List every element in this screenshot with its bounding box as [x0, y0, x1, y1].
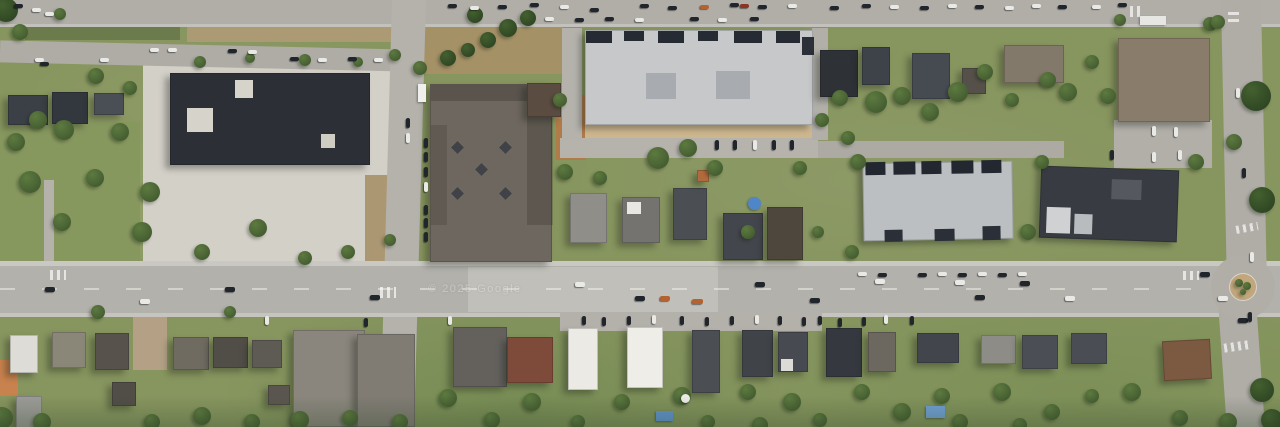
- tree: [1249, 187, 1275, 213]
- tree: [1123, 383, 1141, 401]
- tree: [812, 226, 824, 238]
- car: [424, 205, 428, 215]
- house: [673, 188, 707, 240]
- roof-detail: [499, 187, 512, 200]
- car: [890, 5, 899, 9]
- tree: [707, 160, 723, 176]
- tree: [793, 161, 807, 175]
- garage-brown: [1162, 339, 1212, 381]
- imagery-watermark: © 2025 Google: [428, 283, 522, 295]
- roof-detail: [1111, 179, 1142, 200]
- tree: [593, 171, 607, 185]
- car: [1005, 6, 1014, 10]
- tree: [832, 90, 848, 106]
- tree: [741, 225, 755, 239]
- roof-detail: [187, 108, 213, 132]
- white-dome: [681, 394, 690, 403]
- car: [424, 138, 428, 148]
- tree: [144, 414, 160, 427]
- car: [370, 295, 380, 300]
- car: [730, 316, 734, 325]
- car: [1242, 168, 1246, 178]
- roof-detail: [716, 71, 750, 99]
- tree: [29, 111, 47, 129]
- car: [1118, 3, 1127, 7]
- apartment-complex-south: [357, 334, 415, 427]
- car: [1058, 5, 1067, 9]
- crosswalk: [1228, 8, 1239, 22]
- construction-building: [170, 73, 370, 165]
- house: [868, 332, 896, 372]
- house: [742, 330, 773, 377]
- roof-detail: [781, 359, 793, 371]
- tree: [111, 123, 129, 141]
- tree: [1261, 409, 1280, 427]
- tree: [1250, 378, 1274, 402]
- tree: [53, 213, 71, 231]
- roof-detail: [658, 31, 684, 43]
- tree: [1188, 154, 1204, 170]
- car: [424, 152, 428, 162]
- tree: [461, 43, 475, 57]
- tree: [342, 410, 358, 426]
- car: [818, 316, 822, 325]
- tree: [1235, 279, 1243, 287]
- car: [753, 140, 757, 150]
- tree: [0, 407, 13, 427]
- car: [862, 317, 866, 326]
- tree: [91, 305, 105, 319]
- car: [374, 58, 383, 62]
- car: [424, 167, 428, 177]
- car: [838, 318, 842, 327]
- tree: [140, 182, 160, 202]
- tree: [132, 222, 152, 242]
- tree: [865, 91, 887, 113]
- house: [453, 327, 507, 387]
- car: [730, 3, 739, 7]
- tree: [341, 245, 355, 259]
- tree: [249, 219, 267, 237]
- car: [45, 12, 54, 16]
- tree: [384, 234, 396, 246]
- garage-white: [10, 335, 38, 373]
- roof-detail: [627, 202, 641, 214]
- car: [1238, 318, 1248, 323]
- tree: [1240, 289, 1246, 295]
- tree: [701, 415, 715, 427]
- tree: [299, 54, 311, 66]
- roof-detail: [431, 125, 447, 225]
- crosswalk: [380, 287, 396, 298]
- car: [858, 272, 867, 276]
- car: [718, 18, 727, 22]
- car: [875, 279, 885, 284]
- car: [1152, 152, 1156, 162]
- car: [690, 17, 699, 21]
- house-red-roof: [507, 337, 553, 383]
- car: [32, 8, 41, 12]
- roof-detail: [451, 141, 464, 154]
- car: [635, 296, 645, 301]
- tree: [553, 93, 567, 107]
- tree: [740, 384, 756, 400]
- car: [424, 182, 428, 192]
- roof-detail: [893, 161, 915, 174]
- car: [715, 140, 719, 150]
- center-line: [0, 288, 1280, 290]
- tree: [647, 147, 669, 169]
- tree: [841, 131, 855, 145]
- tree: [480, 32, 496, 48]
- car: [975, 295, 985, 300]
- car: [290, 57, 299, 61]
- tree: [193, 407, 211, 425]
- roof-detail: [451, 187, 464, 200]
- car: [788, 4, 797, 8]
- car: [318, 58, 327, 62]
- car: [424, 218, 428, 228]
- south-parking-lane: [560, 313, 822, 331]
- tree: [934, 388, 950, 404]
- car: [998, 273, 1007, 277]
- car: [1200, 272, 1210, 277]
- tree: [499, 19, 517, 37]
- roof-detail: [865, 162, 885, 175]
- tree: [1044, 404, 1060, 420]
- aerial-map-canvas[interactable]: © 2025 Google: [0, 0, 1280, 427]
- house: [912, 53, 950, 99]
- tree: [1085, 389, 1099, 403]
- tree: [1040, 72, 1056, 88]
- tree: [123, 81, 137, 95]
- roof-detail: [475, 163, 488, 176]
- tree: [19, 171, 41, 193]
- roof-detail: [981, 160, 1001, 173]
- house: [767, 207, 803, 260]
- roof-detail: [321, 134, 335, 148]
- house: [252, 340, 282, 368]
- car: [150, 48, 159, 52]
- roof-detail: [934, 229, 954, 241]
- car: [1065, 296, 1075, 301]
- trampoline: [748, 197, 761, 210]
- car: [448, 316, 452, 325]
- house: [95, 333, 129, 370]
- roof-detail: [646, 73, 676, 99]
- car: [1218, 296, 1228, 301]
- roof-detail: [1046, 207, 1071, 234]
- tree: [1219, 413, 1237, 427]
- car: [918, 273, 927, 277]
- car: [225, 287, 235, 292]
- tree: [484, 412, 500, 427]
- house: [52, 92, 88, 124]
- car: [530, 3, 539, 7]
- car: [265, 316, 269, 325]
- tree: [948, 82, 968, 102]
- tree: [815, 113, 829, 127]
- tree: [845, 245, 859, 259]
- car: [938, 272, 947, 276]
- car: [575, 18, 584, 22]
- car: [1178, 150, 1182, 160]
- tree: [1085, 55, 1099, 69]
- car: [590, 8, 599, 12]
- rv-trailer: [1140, 16, 1166, 25]
- terrace-strip: [585, 125, 815, 138]
- roof-detail: [921, 161, 941, 174]
- roof-detail: [235, 80, 253, 98]
- commercial-hip-building: [1118, 38, 1210, 122]
- tree: [389, 49, 401, 61]
- car: [406, 118, 410, 128]
- tree: [54, 8, 66, 20]
- car: [248, 50, 257, 54]
- tree: [291, 411, 309, 427]
- car: [668, 6, 677, 10]
- car: [545, 17, 554, 21]
- roof-detail: [624, 31, 644, 41]
- tree: [993, 383, 1011, 401]
- car: [790, 140, 794, 150]
- car: [878, 273, 887, 277]
- debris-lot: [133, 316, 167, 370]
- tree: [1172, 410, 1188, 426]
- tree: [1035, 155, 1049, 169]
- tree: [783, 393, 801, 411]
- tree: [224, 306, 236, 318]
- car: [1032, 4, 1041, 8]
- tree: [813, 413, 827, 427]
- car: [1236, 88, 1240, 98]
- car: [100, 58, 109, 62]
- car: [772, 140, 776, 150]
- car: [778, 316, 782, 325]
- car: [755, 282, 765, 287]
- car: [560, 5, 569, 9]
- car: [348, 57, 357, 61]
- tree: [752, 417, 768, 427]
- roof-detail: [734, 31, 762, 43]
- house: [1022, 335, 1058, 369]
- tree: [194, 56, 206, 68]
- block-lane: [562, 28, 582, 140]
- house: [52, 332, 86, 368]
- car: [40, 62, 49, 66]
- car: [1092, 5, 1101, 9]
- pool: [656, 411, 673, 421]
- pool-tarp: [926, 406, 945, 418]
- tree: [54, 120, 74, 140]
- tree: [1013, 418, 1027, 427]
- car: [45, 287, 55, 292]
- car: [1250, 252, 1254, 262]
- roof-detail: [1074, 214, 1093, 235]
- crosswalk: [50, 270, 66, 280]
- car: [14, 4, 23, 8]
- tree: [7, 133, 25, 151]
- tree: [1114, 14, 1126, 26]
- driveway: [44, 180, 54, 272]
- tree: [33, 413, 51, 427]
- house: [1071, 333, 1107, 364]
- car: [830, 6, 839, 10]
- tree: [854, 384, 870, 400]
- tree: [614, 394, 630, 410]
- tree: [557, 164, 573, 180]
- sidewalk: [0, 24, 1280, 27]
- car: [1152, 126, 1156, 136]
- car: [406, 133, 410, 143]
- tree: [245, 53, 255, 63]
- crosswalk: [1183, 271, 1199, 280]
- car: [680, 316, 684, 325]
- house: [826, 328, 862, 377]
- house: [917, 333, 959, 363]
- car: [733, 140, 737, 150]
- roof-detail: [527, 115, 553, 225]
- car: [958, 273, 967, 277]
- moving-truck: [418, 84, 426, 102]
- house: [981, 335, 1016, 364]
- car: [582, 316, 586, 325]
- car: [755, 315, 759, 324]
- car: [758, 5, 767, 9]
- apartment-building-gray: [585, 30, 813, 125]
- tree: [244, 414, 260, 427]
- house: [778, 332, 808, 372]
- roof-detail: [802, 37, 814, 55]
- tree: [1211, 15, 1225, 29]
- tree: [850, 154, 866, 170]
- long-dark-building: [692, 330, 720, 393]
- tree: [679, 139, 697, 157]
- tree: [921, 103, 939, 121]
- car: [660, 296, 670, 301]
- tree: [1226, 134, 1242, 150]
- roof-detail: [499, 141, 512, 154]
- left-cross-street: [0, 40, 412, 71]
- car: [1020, 281, 1030, 286]
- roof-detail: [951, 160, 973, 173]
- apartment-building-1: [862, 161, 1013, 242]
- car: [948, 4, 957, 8]
- roof-detail: [884, 230, 902, 242]
- car: [602, 317, 606, 326]
- apartment-building-2: [1039, 166, 1179, 243]
- white-flat-building: [627, 327, 663, 388]
- car: [862, 4, 871, 8]
- house: [862, 47, 890, 85]
- tree: [194, 244, 210, 260]
- white-flat-building: [568, 328, 598, 390]
- tree: [392, 414, 408, 427]
- tree: [1005, 93, 1019, 107]
- car: [448, 4, 457, 8]
- house: [213, 337, 248, 368]
- roof-detail: [698, 31, 718, 41]
- house: [570, 193, 607, 243]
- car: [978, 272, 987, 276]
- tree: [413, 61, 427, 75]
- car: [605, 17, 614, 21]
- shed: [112, 382, 136, 406]
- house: [622, 197, 660, 243]
- tree: [12, 24, 28, 40]
- car: [975, 5, 984, 9]
- tree: [86, 169, 104, 187]
- car: [635, 18, 644, 22]
- car: [1018, 272, 1027, 276]
- tree: [298, 251, 312, 265]
- car: [955, 280, 965, 285]
- car: [920, 6, 929, 10]
- tree: [1059, 83, 1077, 101]
- tree: [893, 87, 911, 105]
- roof-detail: [776, 31, 800, 43]
- tree: [977, 64, 993, 80]
- car: [168, 48, 177, 52]
- car: [575, 282, 585, 287]
- car: [424, 232, 428, 242]
- car: [884, 315, 888, 324]
- tree: [523, 393, 541, 411]
- car: [470, 6, 479, 10]
- roof-detail: [982, 226, 1000, 240]
- car: [652, 315, 656, 324]
- car: [1174, 127, 1178, 137]
- car: [627, 316, 631, 325]
- roof-detail: [586, 31, 612, 43]
- car: [640, 4, 649, 8]
- car: [1248, 312, 1252, 322]
- tree: [440, 50, 456, 66]
- tree: [893, 403, 911, 421]
- tree: [88, 68, 104, 84]
- car: [498, 5, 507, 9]
- house: [173, 337, 209, 370]
- shed: [268, 385, 290, 405]
- house: [94, 93, 124, 115]
- tree: [1020, 224, 1036, 240]
- tree: [520, 10, 536, 26]
- car: [910, 316, 914, 325]
- car: [700, 5, 709, 9]
- car: [228, 49, 237, 53]
- car: [140, 299, 150, 304]
- car: [810, 298, 820, 303]
- tree: [571, 415, 585, 427]
- tree: [952, 414, 968, 427]
- car: [1110, 150, 1114, 160]
- car: [750, 17, 759, 21]
- car: [705, 317, 709, 326]
- car: [740, 4, 749, 8]
- car: [802, 317, 806, 326]
- car: [364, 318, 368, 327]
- tree: [1241, 81, 1271, 111]
- car: [692, 299, 703, 304]
- tree: [439, 389, 457, 407]
- tree: [1100, 88, 1116, 104]
